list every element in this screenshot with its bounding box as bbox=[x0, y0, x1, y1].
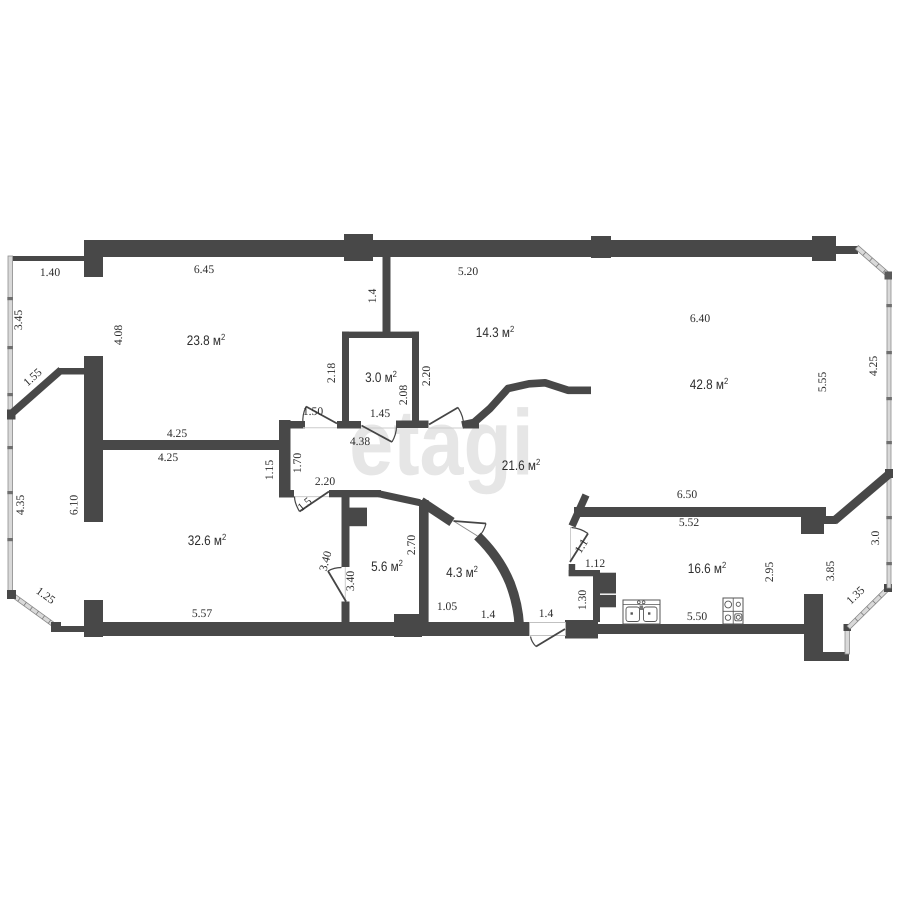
svg-text:3.0: 3.0 bbox=[869, 531, 882, 546]
svg-text:1.45: 1.45 bbox=[370, 407, 390, 420]
svg-text:5.20: 5.20 bbox=[458, 265, 478, 278]
svg-text:3.40: 3.40 bbox=[344, 571, 357, 591]
svg-text:2.20: 2.20 bbox=[420, 366, 433, 386]
svg-text:1.40: 1.40 bbox=[40, 266, 60, 279]
svg-text:4.38: 4.38 bbox=[350, 435, 370, 448]
svg-text:42.8 м2: 42.8 м2 bbox=[690, 376, 728, 392]
svg-text:1.4: 1.4 bbox=[539, 607, 554, 620]
svg-text:5.52: 5.52 bbox=[679, 516, 699, 529]
svg-text:3.85: 3.85 bbox=[824, 561, 837, 581]
svg-text:1.05: 1.05 bbox=[437, 600, 457, 613]
svg-text:5.50: 5.50 bbox=[687, 610, 707, 623]
svg-text:6.45: 6.45 bbox=[194, 263, 214, 276]
svg-text:6.50: 6.50 bbox=[677, 488, 697, 501]
svg-text:3.0 м2: 3.0 м2 bbox=[365, 369, 397, 385]
svg-text:4.3 м2: 4.3 м2 bbox=[446, 564, 478, 580]
svg-text:6.10: 6.10 bbox=[68, 495, 81, 515]
svg-text:3.45: 3.45 bbox=[12, 310, 25, 330]
svg-text:5.6 м2: 5.6 м2 bbox=[371, 558, 403, 574]
svg-text:1.4: 1.4 bbox=[481, 608, 496, 621]
svg-text:16.6 м2: 16.6 м2 bbox=[688, 560, 726, 576]
svg-text:2.95: 2.95 bbox=[763, 562, 776, 582]
svg-text:1.12: 1.12 bbox=[585, 557, 605, 570]
svg-text:4.25: 4.25 bbox=[867, 356, 880, 376]
svg-text:2.20: 2.20 bbox=[315, 475, 335, 488]
svg-text:14.3 м2: 14.3 м2 bbox=[476, 324, 514, 340]
svg-text:2.70: 2.70 bbox=[405, 535, 418, 555]
svg-text:1.4: 1.4 bbox=[366, 289, 379, 304]
svg-text:2.08: 2.08 bbox=[397, 385, 410, 405]
svg-text:5.55: 5.55 bbox=[816, 372, 829, 392]
svg-text:5.57: 5.57 bbox=[192, 607, 212, 620]
svg-text:6.40: 6.40 bbox=[690, 312, 710, 325]
svg-text:1.70: 1.70 bbox=[291, 453, 304, 473]
svg-text:2.18: 2.18 bbox=[325, 363, 338, 383]
svg-text:21.6 м2: 21.6 м2 bbox=[502, 457, 540, 473]
svg-text:4.35: 4.35 bbox=[14, 495, 27, 515]
svg-text:32.6 м2: 32.6 м2 bbox=[188, 532, 226, 548]
svg-text:1.15: 1.15 bbox=[263, 460, 276, 480]
svg-text:1.50: 1.50 bbox=[303, 405, 323, 418]
svg-text:1.30: 1.30 bbox=[576, 590, 589, 610]
svg-text:4.25: 4.25 bbox=[167, 427, 187, 440]
svg-text:4.25: 4.25 bbox=[158, 451, 178, 464]
svg-text:4.08: 4.08 bbox=[112, 325, 125, 345]
svg-text:23.8 м2: 23.8 м2 bbox=[187, 332, 225, 348]
